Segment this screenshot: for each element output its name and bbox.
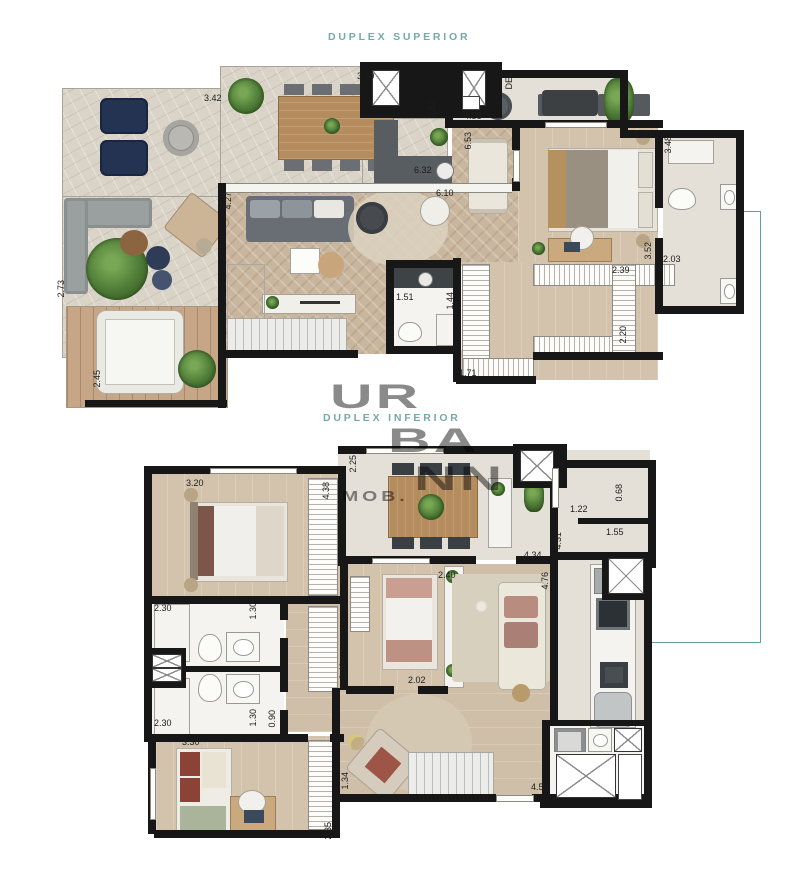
wall bbox=[418, 686, 448, 694]
window bbox=[150, 768, 156, 820]
plant bbox=[228, 78, 264, 114]
washbasin bbox=[226, 674, 260, 704]
upper-dimension-label: 1.71 bbox=[459, 369, 477, 378]
gym-equipment bbox=[542, 90, 598, 116]
stove bbox=[596, 598, 630, 630]
lower-dimension-label: 1.22 bbox=[570, 505, 588, 514]
watermark-urban-sub: MOB. bbox=[342, 489, 409, 504]
dining-chair bbox=[284, 84, 304, 95]
wall bbox=[548, 720, 648, 726]
bed-sheet bbox=[214, 506, 256, 576]
plant bbox=[532, 242, 545, 255]
wall bbox=[663, 306, 743, 314]
sliding-door bbox=[226, 183, 512, 193]
wall bbox=[386, 346, 461, 354]
table-plant bbox=[324, 118, 340, 134]
bed-blanket bbox=[386, 640, 432, 662]
coffee-table bbox=[290, 248, 320, 274]
wall bbox=[332, 688, 340, 798]
wall bbox=[578, 518, 650, 524]
tv bbox=[300, 301, 340, 304]
dining-chair bbox=[340, 84, 360, 95]
sofa-cushion bbox=[314, 200, 344, 218]
washer bbox=[554, 728, 586, 752]
lower-dimension-label: 2.02 bbox=[408, 676, 426, 685]
upper-dimension-label: 2.45 bbox=[93, 370, 102, 388]
pillow bbox=[638, 192, 653, 228]
lower-dimension-label: 4.53 bbox=[531, 783, 549, 792]
fire-table bbox=[163, 120, 199, 156]
side-table bbox=[348, 734, 364, 750]
laptop bbox=[564, 242, 580, 252]
bed-sheet bbox=[386, 598, 432, 640]
plan-connector-line bbox=[744, 211, 761, 212]
upper-dimension-label: 4.27 bbox=[224, 192, 233, 210]
wall bbox=[280, 710, 288, 736]
pillow bbox=[180, 752, 200, 776]
side-table bbox=[420, 196, 450, 226]
window bbox=[545, 122, 607, 128]
wardrobe bbox=[308, 606, 338, 692]
pouf bbox=[120, 230, 148, 256]
lower-dimension-label: 3.30 bbox=[182, 738, 200, 747]
wardrobe bbox=[462, 264, 490, 370]
lower-dimension-label: 4.38 bbox=[322, 482, 331, 500]
bed-blanket bbox=[566, 150, 608, 228]
bed-sheet bbox=[608, 150, 638, 228]
upper-dimension-label: 2.03 bbox=[663, 255, 681, 264]
dining-chair bbox=[392, 463, 414, 475]
lower-dimension-label: 1.34 bbox=[341, 772, 350, 790]
chaise-bench bbox=[468, 138, 508, 214]
upper-dimension-label: 2.20 bbox=[619, 326, 628, 344]
upper-dimension-label: 1.51 bbox=[396, 293, 414, 302]
armchair bbox=[356, 202, 388, 234]
outdoor-sofa bbox=[64, 198, 88, 294]
upper-dimension-label: 3.48 bbox=[664, 136, 673, 154]
wall bbox=[563, 460, 655, 468]
pouf bbox=[146, 246, 170, 270]
wall bbox=[154, 830, 340, 838]
pouf bbox=[318, 252, 344, 278]
upper-dimension-label: DEL bbox=[505, 72, 514, 90]
kitchen-sink bbox=[600, 662, 628, 688]
toilet bbox=[398, 322, 422, 342]
upper-dimension-label: 5.00 bbox=[634, 130, 652, 139]
lower-dimension-label: 2.40 bbox=[438, 571, 456, 580]
lower-dimension-label: 2.40 bbox=[339, 662, 348, 680]
wall bbox=[85, 400, 227, 407]
dining-chair bbox=[312, 160, 332, 171]
laundry-box bbox=[618, 754, 642, 800]
dining-chair bbox=[312, 84, 332, 95]
elevator-box bbox=[372, 70, 400, 106]
page-title-inferior: DUPLEX INFERIOR bbox=[323, 412, 461, 424]
sun-lounger bbox=[100, 98, 148, 134]
shower bbox=[668, 140, 714, 164]
lower-dimension-label: 4.34 bbox=[524, 551, 542, 560]
toilet bbox=[198, 634, 222, 662]
bed-blanket bbox=[256, 506, 284, 576]
laundry-sink bbox=[588, 728, 612, 752]
pillow bbox=[202, 752, 226, 788]
lower-dimension-label: 1.30 bbox=[249, 602, 258, 620]
upper-dimension-label: 3.52 bbox=[644, 242, 653, 260]
plant bbox=[178, 350, 216, 388]
wall bbox=[218, 350, 358, 358]
lower-dimension-label: 2.30 bbox=[154, 719, 172, 728]
wall bbox=[386, 260, 461, 268]
pouf bbox=[152, 270, 172, 290]
pillows bbox=[198, 506, 214, 576]
staircase-lower bbox=[408, 752, 494, 798]
lower-dimension-label: 0.90 bbox=[268, 710, 277, 728]
wall bbox=[445, 78, 453, 126]
lower-dimension-label: 0.68 bbox=[615, 484, 624, 502]
sofa-cushion bbox=[250, 200, 280, 218]
wall bbox=[336, 794, 496, 802]
wall bbox=[552, 552, 608, 560]
bed-bench bbox=[548, 150, 566, 228]
dining-chair bbox=[392, 537, 414, 549]
vanity-sink bbox=[418, 272, 433, 287]
plant bbox=[604, 78, 634, 124]
lower-dimension-label: 3.20 bbox=[186, 479, 204, 488]
upper-dimension-label: 6.32 bbox=[414, 166, 432, 175]
wall bbox=[280, 598, 288, 620]
sun-lounger bbox=[100, 140, 148, 176]
wall bbox=[655, 130, 663, 208]
shaft-box bbox=[608, 558, 644, 594]
bed-blanket bbox=[180, 806, 226, 830]
shower bbox=[436, 314, 454, 346]
floorplan-page: DUPLEX SUPERIOR bbox=[0, 0, 790, 887]
lower-dimension-label: 1.30 bbox=[249, 709, 258, 727]
sofa-cushion bbox=[504, 596, 538, 618]
lower-dimension-label: 2.30 bbox=[154, 604, 172, 613]
wall bbox=[644, 554, 652, 806]
upper-dimension-label: 2.73 bbox=[57, 280, 66, 298]
upper-dimension-label: 3.29 bbox=[357, 72, 375, 81]
upper-dimension-label: 2.39 bbox=[612, 266, 630, 275]
staircase-upper-run bbox=[227, 264, 265, 320]
wall bbox=[386, 260, 394, 354]
dining-chair bbox=[420, 537, 442, 549]
lower-dimension-label: 2.35 bbox=[324, 822, 333, 840]
wardrobe bbox=[350, 576, 370, 632]
lower-dimension-label: 2.25 bbox=[349, 455, 358, 473]
watermark-urban-line3: NN bbox=[414, 462, 505, 496]
page-title-superior: DUPLEX SUPERIOR bbox=[328, 31, 470, 43]
upper-dimension-label: 1.44 bbox=[446, 292, 455, 310]
window bbox=[210, 468, 297, 474]
wall bbox=[512, 126, 520, 150]
outdoor-sink bbox=[436, 162, 454, 180]
shaft-box bbox=[520, 450, 554, 482]
window bbox=[513, 150, 520, 182]
dining-chair bbox=[340, 160, 360, 171]
wall bbox=[280, 638, 288, 692]
watermark-urban-line1: UR bbox=[330, 380, 421, 414]
watermark-urban-line2: BA bbox=[388, 424, 479, 458]
wall bbox=[655, 238, 663, 314]
lower-dimension-label: 1.55 bbox=[606, 528, 624, 537]
hot-tub bbox=[96, 310, 184, 394]
headboard bbox=[190, 502, 198, 580]
dining-chair bbox=[284, 160, 304, 171]
laundry-box bbox=[614, 728, 642, 752]
wall bbox=[550, 560, 558, 720]
lower-dimension-label: 4.76 bbox=[541, 572, 550, 590]
toilet bbox=[198, 674, 222, 702]
upper-dimension-label: 2.12 bbox=[428, 100, 437, 118]
toilet bbox=[668, 188, 696, 210]
shaft-box bbox=[152, 654, 182, 668]
nightstand bbox=[184, 578, 198, 592]
lower-dimension-label: 4.31 bbox=[554, 532, 563, 550]
plant bbox=[430, 128, 448, 146]
laundry-box bbox=[556, 754, 616, 798]
shaft-box bbox=[152, 668, 182, 682]
laptop bbox=[244, 810, 264, 823]
pillow bbox=[638, 152, 653, 188]
wall bbox=[144, 466, 152, 742]
plan-connector-line bbox=[650, 642, 761, 643]
nightstand bbox=[184, 488, 198, 502]
upper-dimension-label: 6.10 bbox=[436, 189, 454, 198]
wall bbox=[453, 258, 461, 382]
wardrobe bbox=[533, 264, 675, 286]
wall bbox=[146, 596, 346, 604]
pillows bbox=[386, 578, 432, 598]
washbasin bbox=[226, 632, 260, 662]
wall bbox=[736, 130, 744, 314]
plan-connector-line bbox=[760, 211, 761, 643]
wall bbox=[498, 70, 628, 78]
side-table bbox=[196, 238, 212, 254]
side-table bbox=[512, 684, 530, 702]
door-leaf bbox=[552, 468, 559, 508]
sofa-cushion bbox=[504, 622, 538, 648]
duct-box bbox=[462, 96, 480, 110]
window bbox=[372, 558, 430, 564]
upper-dimension-label: 4.58 bbox=[464, 112, 482, 121]
sofa-cushion bbox=[282, 200, 312, 218]
upper-dimension-label: 6.53 bbox=[464, 132, 473, 150]
upper-dimension-label: 3.42 bbox=[204, 94, 222, 103]
plant bbox=[266, 296, 279, 309]
door-leaf bbox=[496, 795, 534, 802]
wall bbox=[338, 466, 346, 566]
dining-chair bbox=[448, 537, 470, 549]
pillow bbox=[180, 778, 200, 802]
wall bbox=[533, 352, 663, 360]
wall bbox=[346, 686, 394, 694]
